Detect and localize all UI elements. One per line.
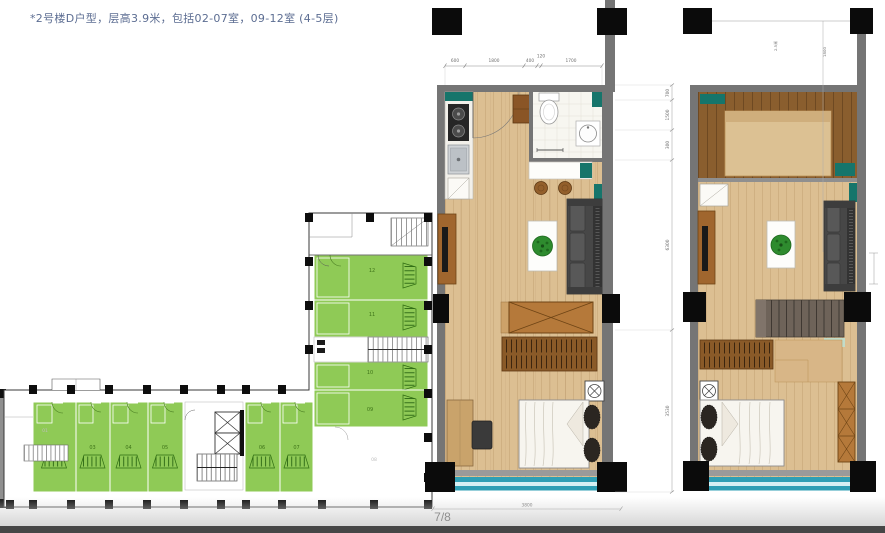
dim-label: 1500	[665, 109, 671, 120]
unit-04: 04	[110, 402, 148, 492]
mid-stair-landing	[314, 337, 428, 362]
sofa	[567, 199, 602, 294]
potted-plant	[771, 235, 791, 255]
kitchen	[445, 92, 473, 199]
unit-06: 06	[245, 402, 280, 492]
step-stairs	[756, 300, 844, 337]
unit-12-label: 12	[369, 268, 375, 274]
coffee-table	[528, 221, 557, 271]
page-indicator: 7/8	[0, 510, 885, 524]
unit-12: 12	[314, 255, 428, 300]
unit-05: 05	[148, 402, 183, 492]
wardrobe-rail	[700, 340, 773, 369]
core-stairs	[197, 454, 237, 481]
bottom-bar	[0, 526, 885, 533]
elevator-shaft-wall	[240, 410, 244, 456]
dim-label: 1700	[566, 58, 577, 64]
plan-title: *2号楼D户型，层高3.9米，包括02-07室，09-12室 (4-5层)	[30, 10, 339, 26]
dim-label: 3530	[665, 405, 671, 416]
unit-08-label: 08	[371, 457, 377, 463]
double-bed	[700, 400, 784, 466]
unit-plan-lower: 600 1800 400 120 1700 700 1500 300 6300 …	[425, 0, 675, 520]
dim-label: 300	[665, 141, 671, 149]
unit-09-label: 09	[367, 407, 373, 413]
dim-label: 120	[537, 54, 545, 60]
dim-note: 1800	[822, 47, 827, 57]
unit-07-label: 07	[293, 445, 299, 451]
tv-cabinet	[698, 211, 715, 284]
unit-11: 11	[314, 300, 428, 337]
dimension-top: 600 1800 400 120 1700	[444, 54, 604, 86]
dimension-right: 700 1500 300 6300 3530	[615, 84, 674, 494]
dim-label: 400	[526, 58, 534, 64]
interior-stairs	[501, 302, 593, 333]
elevator-1	[215, 412, 240, 433]
toilet	[539, 93, 559, 124]
desk-chair	[472, 421, 492, 449]
double-bed	[519, 400, 600, 468]
unit-06-label: 06	[259, 445, 265, 451]
tall-cabinet	[838, 382, 855, 462]
bathroom	[529, 88, 602, 162]
dim-label: 600	[451, 58, 459, 64]
unit-03: 03	[76, 402, 110, 492]
highlighted-units-horizontal: 02 03 04	[33, 402, 313, 492]
overview-floor-plan: 02 03 04	[0, 205, 445, 515]
loft-bed-platform	[698, 92, 857, 182]
unit-04-label: 04	[125, 445, 131, 451]
window-strip	[698, 470, 857, 491]
dim-label: 700	[665, 89, 671, 97]
unit-09: 09	[314, 390, 428, 427]
dim-label: 3800	[522, 503, 533, 509]
wood-platform	[775, 340, 842, 382]
wardrobe-rail	[502, 337, 597, 371]
washbasin	[576, 121, 600, 146]
tv-cabinet	[438, 214, 456, 284]
bath-teal-cabinet	[592, 92, 602, 107]
tv	[702, 226, 708, 271]
dim-label: 6300	[665, 239, 671, 250]
desk	[447, 400, 473, 466]
tv	[442, 227, 448, 272]
core	[185, 402, 244, 490]
wall-ac-unit	[849, 183, 857, 202]
dim-label: 1800	[489, 58, 500, 64]
stove	[448, 104, 469, 141]
kitchen-teal-cabinet	[445, 92, 473, 101]
coffee-table	[767, 221, 795, 268]
entry-canopy	[52, 379, 100, 390]
unit-01-label: 01	[42, 428, 48, 434]
unit-plan-upper: 2.5米 1800	[678, 0, 885, 520]
shelf-cabinet	[700, 184, 728, 206]
dimension-right-bracket	[869, 253, 878, 284]
unit-10-label: 10	[367, 370, 373, 376]
loft-teal-cabinet-2	[835, 163, 855, 176]
slide: *2号楼D户型，层高3.9米，包括02-07室，09-12室 (4-5层)	[0, 0, 885, 533]
sofa	[824, 201, 855, 291]
unit-07: 07	[280, 402, 313, 492]
sink	[448, 145, 469, 174]
washing-machine	[700, 381, 718, 401]
window-strip	[445, 470, 602, 491]
potted-plant	[533, 236, 553, 256]
unit-03-label: 03	[89, 445, 95, 451]
elevator-2	[215, 433, 240, 454]
unit-11-label: 11	[369, 312, 375, 318]
unit-10: 10	[314, 362, 428, 390]
washing-machine	[585, 381, 604, 401]
dim-note: 2.5米	[773, 41, 778, 51]
unit-05-label: 05	[162, 445, 168, 451]
loft-teal-cabinet	[700, 94, 725, 104]
